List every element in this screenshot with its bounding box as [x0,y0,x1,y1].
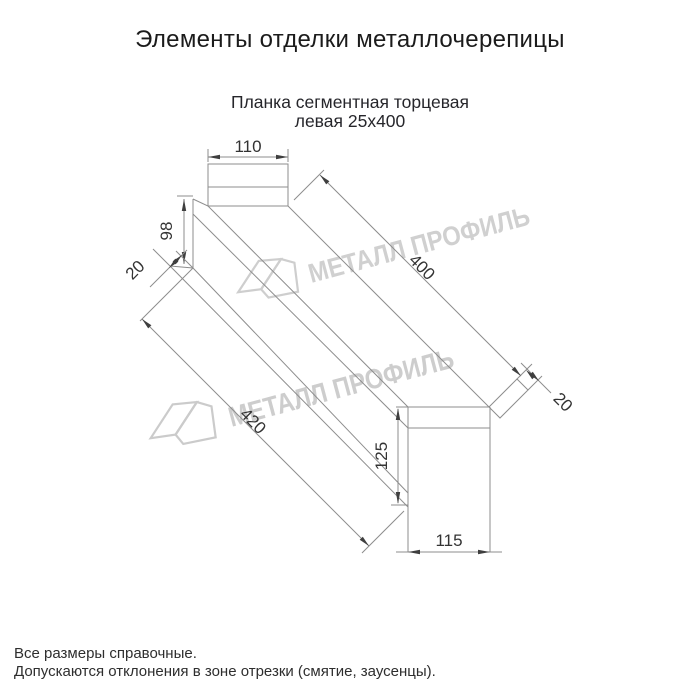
technical-drawing-svg: МЕТАЛЛ ПРОФИЛЬ МЕТАЛЛ ПРОФИЛЬ [0,0,700,700]
watermark-lower: МЕТАЛЛ ПРОФИЛЬ [144,331,457,454]
dim-label-top-width: 110 [234,137,261,156]
right-hem-flap [489,379,528,418]
drawing-page: Элементы отделки металлочерепицы Планка … [0,0,700,700]
dim-label-left-hem: 20 [122,257,149,284]
footnote-line-2: Допускаются отклонения в зоне отрезки (с… [14,663,436,681]
dim-label-right-hem: 20 [549,389,576,416]
hem-end-edge [170,266,193,268]
footnote-line-1: Все размеры справочные. [14,645,436,663]
footnotes: Все размеры справочные. Допускаются откл… [14,645,436,680]
dimension-lines: 110 98 20 400 20 420 [122,137,577,554]
watermark-upper: МЕТАЛЛ ПРОФИЛЬ [232,190,533,308]
dim-label-bottom-width: 115 [435,531,462,550]
top-end-face [208,164,288,206]
house-logo-icon [232,252,302,307]
house-logo-icon [144,395,220,454]
dim-label-right-height: 125 [372,442,391,470]
dim-label-left-height: 98 [157,222,176,241]
